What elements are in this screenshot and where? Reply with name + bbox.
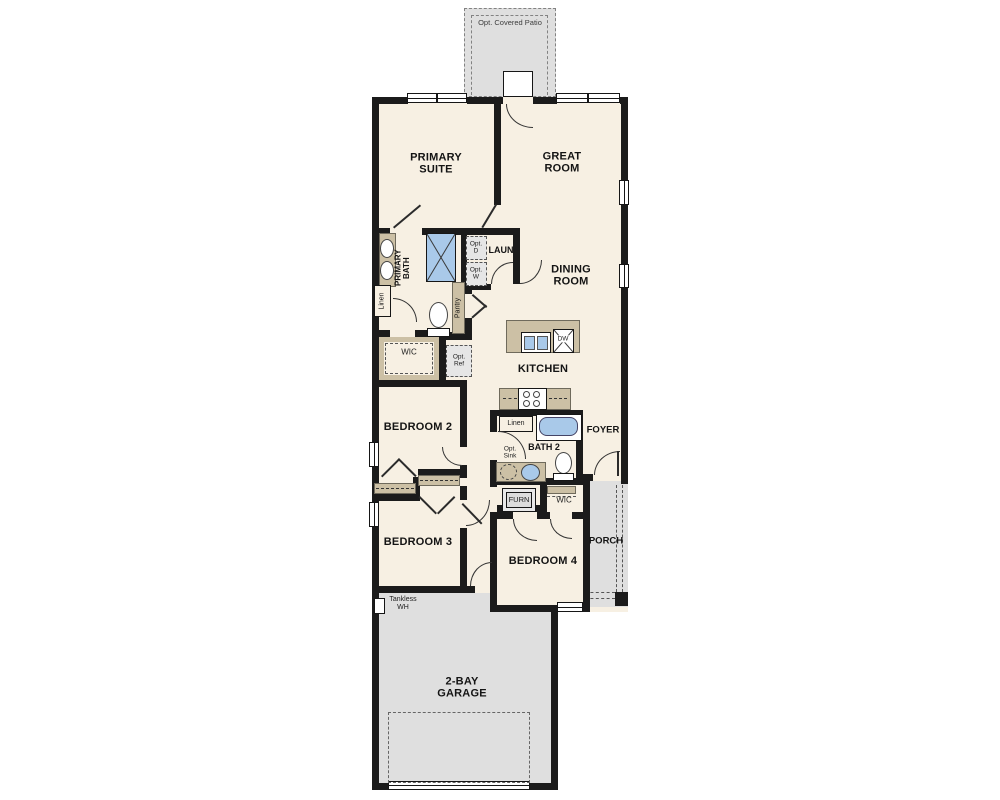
wall-segment xyxy=(494,104,501,205)
wall-segment xyxy=(621,205,628,264)
wall-segment xyxy=(530,783,558,790)
tankless-wh-label: Tankless WH xyxy=(385,596,421,612)
wic-shelf xyxy=(547,486,576,494)
toilet-tank xyxy=(427,328,450,337)
opt-sink-outline xyxy=(500,464,517,480)
floor-plan: Opt. Covered Patio xyxy=(0,0,1000,800)
linen-label: Linen xyxy=(378,292,385,309)
wall-segment xyxy=(460,528,467,586)
dishwasher-label: DW xyxy=(557,335,570,342)
toilet-fixture xyxy=(555,452,572,474)
porch-label: PORCH xyxy=(589,537,623,548)
window xyxy=(619,264,629,288)
tub-basin xyxy=(539,417,578,436)
wall-segment xyxy=(372,593,379,790)
shower-fixture xyxy=(426,233,456,282)
window xyxy=(619,180,629,205)
garage-label: 2-BAY GARAGE xyxy=(430,676,494,701)
wall-segment xyxy=(572,512,583,519)
wall-segment xyxy=(490,512,513,519)
wall-segment xyxy=(490,416,497,432)
sink-fixture xyxy=(380,261,394,280)
opt-sink-label: Opt. Sink xyxy=(500,446,520,461)
wic-label: WIC xyxy=(556,497,572,506)
wall-segment xyxy=(621,288,628,474)
wall-segment xyxy=(540,485,547,512)
counter-dashed-line xyxy=(503,398,517,399)
great-room-label: GREAT ROOM xyxy=(536,151,588,176)
opt-dryer-label: Opt. D xyxy=(468,241,484,256)
wall-segment xyxy=(372,380,467,387)
kitchen-label: KITCHEN xyxy=(518,363,568,375)
sink-fixture xyxy=(380,239,394,258)
wic-shelving xyxy=(379,337,439,380)
window xyxy=(437,93,467,103)
opt-washer-label: Opt. W xyxy=(468,267,484,282)
porch-post xyxy=(615,592,628,606)
bedroom4-label: BEDROOM 4 xyxy=(509,555,577,567)
window xyxy=(369,442,379,467)
laundry-label: LAUN xyxy=(489,245,514,255)
covered-patio-label: Opt. Covered Patio xyxy=(478,19,542,27)
bathtub-fixture xyxy=(536,414,582,441)
door-leaf xyxy=(617,451,619,476)
window xyxy=(588,93,620,103)
closet-shelf-dashed-line xyxy=(376,488,414,489)
wall-segment xyxy=(467,97,503,104)
bedroom3-label: BEDROOM 3 xyxy=(384,536,452,548)
range-fixture xyxy=(518,388,547,410)
wall-segment xyxy=(497,605,557,612)
wall-segment xyxy=(513,235,520,284)
wall-segment xyxy=(372,527,379,593)
counter-dashed-line xyxy=(549,398,567,399)
wic-label: WIC xyxy=(401,349,417,358)
wall-segment xyxy=(439,337,446,380)
burner xyxy=(523,400,530,407)
furnace-label: FURN xyxy=(509,496,530,504)
closet-shelf-dashed-line xyxy=(420,480,458,481)
primary-bath-label: PRIMARY BATH xyxy=(395,245,412,291)
wall-segment xyxy=(621,474,628,484)
foyer-label: FOYER xyxy=(587,426,620,437)
toilet-tank xyxy=(553,473,574,481)
wall-segment xyxy=(372,586,475,593)
wall-segment xyxy=(537,512,550,519)
primary-suite-label: PRIMARY SUITE xyxy=(401,152,471,177)
window xyxy=(557,602,583,612)
bedroom2-label: BEDROOM 2 xyxy=(384,421,452,433)
garage-apron-dashed xyxy=(388,712,530,783)
burner xyxy=(523,391,530,398)
pantry-label: Pantry xyxy=(454,298,461,318)
sink-basin xyxy=(524,336,535,350)
wall-segment xyxy=(460,387,467,447)
wall-segment xyxy=(583,474,593,481)
wall-segment xyxy=(533,97,557,104)
sink-fixture xyxy=(521,464,540,481)
wall-segment xyxy=(372,330,390,337)
toilet-fixture xyxy=(429,302,448,328)
wall-segment xyxy=(372,97,379,442)
bath2-label: BATH 2 xyxy=(528,442,560,452)
patio-door xyxy=(503,71,533,97)
window xyxy=(556,93,588,103)
opt-ref-label: Opt. Ref xyxy=(450,354,468,369)
wall-segment xyxy=(372,783,388,790)
window xyxy=(407,93,437,103)
wall-segment xyxy=(460,486,467,500)
tankless-water-heater xyxy=(374,598,385,614)
sink-basin xyxy=(537,336,548,350)
window xyxy=(369,502,379,527)
wall-segment xyxy=(621,97,628,180)
burner xyxy=(533,400,540,407)
burner xyxy=(533,391,540,398)
wall-segment xyxy=(551,612,558,790)
wall-segment xyxy=(372,494,420,501)
dining-room-label: DINING ROOM xyxy=(545,264,597,289)
linen-label: Linen xyxy=(507,420,524,428)
